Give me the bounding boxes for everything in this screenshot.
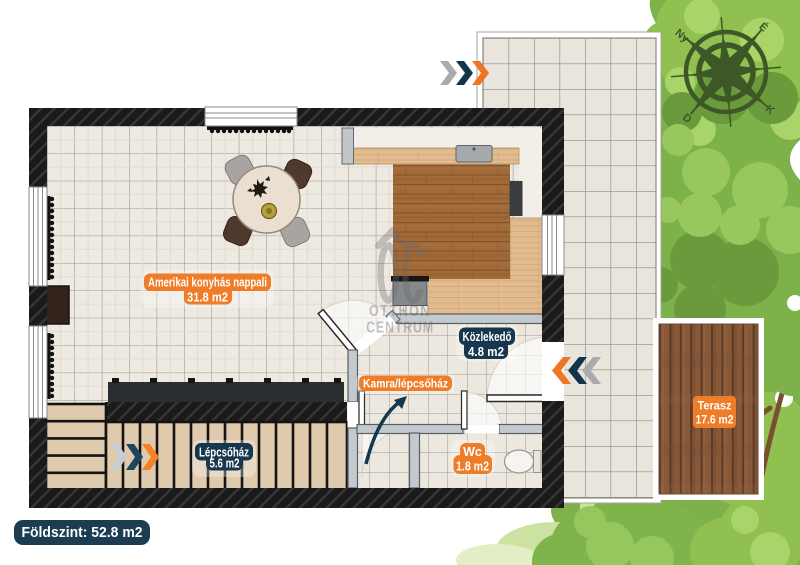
svg-text:5.6 m2: 5.6 m2 (210, 457, 240, 471)
svg-text:CENTRUM: CENTRUM (366, 319, 434, 337)
svg-text:Közlekedő: Közlekedő (463, 330, 512, 344)
svg-text:Terasz: Terasz (698, 401, 732, 413)
svg-text:4.8 m2: 4.8 m2 (468, 345, 504, 359)
svg-text:1.8 m2: 1.8 m2 (456, 460, 489, 474)
svg-text:17.6 m2: 17.6 m2 (696, 415, 734, 427)
svg-text:Kamra/lépcsőház: Kamra/lépcsőház (363, 377, 448, 391)
svg-text:Földszint: 52.8 m2: Földszint: 52.8 m2 (22, 525, 143, 541)
svg-text:Wc: Wc (463, 445, 482, 459)
svg-text:Amerikai konyhás nappali: Amerikai konyhás nappali (148, 276, 267, 290)
svg-text:31.8 m2: 31.8 m2 (187, 291, 228, 305)
svg-text:OTTHON: OTTHON (369, 303, 431, 321)
